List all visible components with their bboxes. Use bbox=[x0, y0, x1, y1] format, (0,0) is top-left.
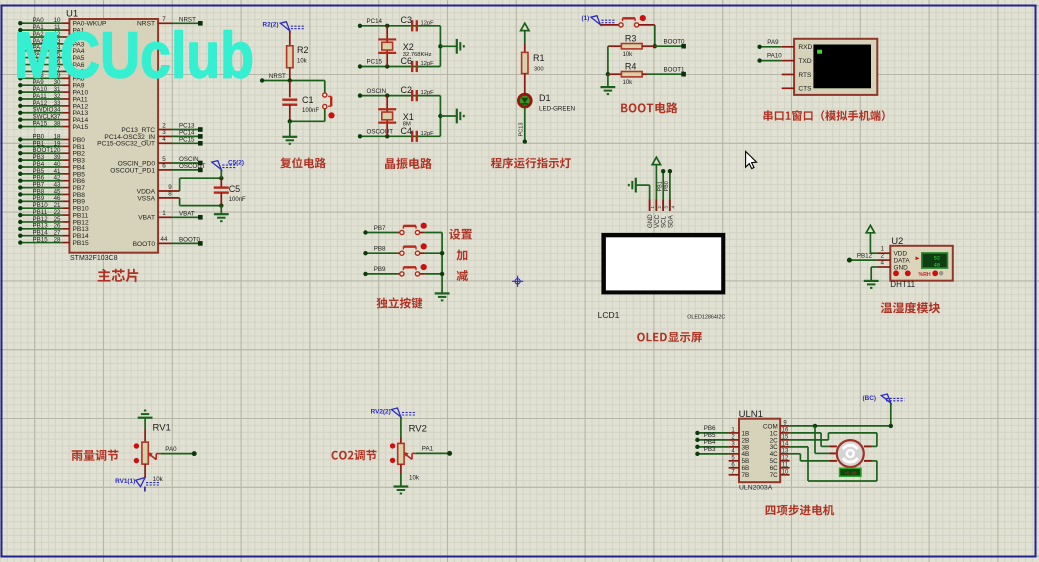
svg-text:PA10: PA10 bbox=[767, 53, 782, 60]
svg-text:10k: 10k bbox=[153, 476, 164, 483]
svg-text:1: 1 bbox=[162, 210, 166, 217]
svg-text:RV2(2): RV2(2) bbox=[371, 408, 391, 415]
svg-text:6B: 6B bbox=[742, 465, 750, 472]
svg-text:6C: 6C bbox=[770, 465, 779, 472]
svg-text:VBAT: VBAT bbox=[138, 215, 155, 222]
svg-text:10k: 10k bbox=[623, 52, 634, 58]
svg-text:PC15: PC15 bbox=[179, 137, 195, 144]
svg-text:4: 4 bbox=[162, 136, 166, 143]
svg-text:C3: C3 bbox=[401, 15, 413, 25]
svg-text:OSCOUT: OSCOUT bbox=[179, 163, 206, 170]
svg-text:RTS: RTS bbox=[798, 72, 812, 79]
svg-text:1C: 1C bbox=[770, 430, 779, 437]
svg-text:8: 8 bbox=[168, 191, 172, 198]
svg-text:12pF: 12pF bbox=[421, 61, 435, 67]
svg-text:X2: X2 bbox=[403, 42, 414, 52]
svg-text:(BC): (BC) bbox=[863, 395, 877, 402]
svg-text:PB1: PB1 bbox=[657, 181, 663, 191]
svg-text:LED-GREEN: LED-GREEN bbox=[539, 105, 575, 112]
svg-text:PB12: PB12 bbox=[857, 252, 873, 259]
svg-text:C6: C6 bbox=[401, 56, 413, 66]
svg-text:PB7: PB7 bbox=[374, 225, 386, 232]
svg-text:10k: 10k bbox=[623, 80, 634, 86]
svg-text:D1: D1 bbox=[539, 93, 551, 103]
svg-text:10k: 10k bbox=[297, 59, 308, 65]
svg-text:2C: 2C bbox=[770, 437, 779, 444]
svg-text:16: 16 bbox=[782, 427, 789, 433]
svg-text:R3: R3 bbox=[625, 34, 637, 44]
svg-text:5B: 5B bbox=[742, 458, 750, 465]
svg-text:TXD: TXD bbox=[798, 58, 811, 65]
svg-text:PA15: PA15 bbox=[33, 120, 48, 127]
svg-text:12: 12 bbox=[782, 455, 789, 461]
svg-text:OSCOUT_PD1: OSCOUT_PD1 bbox=[110, 167, 155, 174]
svg-text:100nF: 100nF bbox=[229, 197, 246, 203]
svg-text:PB15: PB15 bbox=[33, 236, 49, 243]
svg-text:PB0: PB0 bbox=[664, 181, 670, 191]
svg-text:3C: 3C bbox=[770, 444, 779, 451]
svg-text:PB8: PB8 bbox=[374, 246, 386, 253]
svg-text:R4: R4 bbox=[625, 62, 637, 72]
svg-text:52: 52 bbox=[934, 255, 940, 261]
svg-text:SDA: SDA bbox=[667, 214, 674, 228]
svg-text:PC13: PC13 bbox=[519, 123, 525, 137]
svg-text:PC15-OSC32_OUT: PC15-OSC32_OUT bbox=[97, 141, 155, 148]
svg-text:LCD1: LCD1 bbox=[598, 310, 620, 320]
svg-text:12pF: 12pF bbox=[421, 131, 435, 137]
svg-text:R2(2): R2(2) bbox=[263, 22, 279, 29]
svg-text:NRST: NRST bbox=[269, 73, 286, 80]
svg-text:VSSA: VSSA bbox=[137, 195, 155, 202]
svg-text:DHT11: DHT11 bbox=[890, 280, 915, 289]
svg-text:11: 11 bbox=[782, 462, 789, 468]
svg-text:40: 40 bbox=[934, 262, 940, 268]
svg-text:PB5: PB5 bbox=[704, 432, 716, 439]
svg-text:PB6: PB6 bbox=[704, 425, 716, 432]
svg-text:PA0: PA0 bbox=[165, 446, 177, 453]
svg-text:CTS: CTS bbox=[798, 86, 812, 93]
svg-text:3B: 3B bbox=[742, 444, 750, 451]
svg-text:OLED12864I2C: OLED12864I2C bbox=[687, 315, 725, 321]
svg-text:PC15: PC15 bbox=[367, 59, 383, 66]
svg-text:RV1(1): RV1(1) bbox=[115, 478, 135, 485]
svg-text:PB3: PB3 bbox=[704, 446, 716, 453]
svg-text:1B: 1B bbox=[742, 430, 750, 437]
svg-text:+0.00: +0.00 bbox=[844, 473, 857, 477]
svg-text:RXD: RXD bbox=[798, 44, 812, 51]
svg-text:PA9: PA9 bbox=[767, 39, 779, 46]
svg-text:PB4: PB4 bbox=[704, 439, 716, 446]
svg-text:PA1: PA1 bbox=[422, 446, 434, 453]
svg-text:VBAT: VBAT bbox=[179, 211, 195, 218]
svg-text:BOOT0: BOOT0 bbox=[179, 237, 201, 244]
svg-text:28: 28 bbox=[54, 236, 61, 243]
svg-text:7C: 7C bbox=[770, 472, 779, 479]
svg-text:STM32F103C8: STM32F103C8 bbox=[70, 255, 118, 262]
svg-text:BOOT1: BOOT1 bbox=[664, 66, 686, 73]
svg-text:4C: 4C bbox=[770, 451, 779, 458]
svg-text:BOOT0: BOOT0 bbox=[664, 38, 686, 45]
svg-text:300: 300 bbox=[534, 67, 544, 73]
svg-text:15: 15 bbox=[782, 434, 789, 440]
svg-text:OSCOUT: OSCOUT bbox=[367, 129, 394, 136]
svg-text:C5: C5 bbox=[229, 184, 241, 194]
svg-text:C5(2): C5(2) bbox=[228, 159, 244, 166]
svg-text:RV2: RV2 bbox=[409, 424, 427, 435]
svg-text:38: 38 bbox=[54, 120, 61, 127]
svg-text:C4: C4 bbox=[401, 126, 413, 136]
svg-text:PB15: PB15 bbox=[73, 240, 89, 247]
svg-text:MCUclub: MCUclub bbox=[14, 19, 254, 92]
svg-text:C1: C1 bbox=[302, 95, 314, 105]
svg-text:5C: 5C bbox=[770, 458, 779, 465]
svg-text:6: 6 bbox=[162, 163, 166, 170]
svg-text:12pF: 12pF bbox=[421, 90, 435, 96]
svg-text:PC14: PC14 bbox=[367, 18, 383, 25]
svg-text:BOOT0: BOOT0 bbox=[133, 241, 156, 248]
svg-text:PB9: PB9 bbox=[374, 266, 386, 273]
svg-text:ULN2003A: ULN2003A bbox=[739, 484, 773, 491]
svg-text:(1): (1) bbox=[582, 15, 590, 22]
svg-text:14: 14 bbox=[782, 441, 789, 447]
svg-text:R1: R1 bbox=[533, 53, 545, 63]
svg-text:RV1: RV1 bbox=[153, 423, 171, 434]
svg-text:OSCIN: OSCIN bbox=[367, 88, 387, 95]
svg-text:X1: X1 bbox=[403, 112, 414, 122]
svg-text:44: 44 bbox=[161, 236, 168, 243]
svg-text:PA15: PA15 bbox=[73, 124, 89, 131]
svg-text:13: 13 bbox=[782, 448, 789, 454]
svg-text:7B: 7B bbox=[742, 472, 750, 479]
svg-text:100nF: 100nF bbox=[302, 108, 319, 114]
svg-text:10: 10 bbox=[782, 469, 789, 475]
svg-text:2B: 2B bbox=[742, 437, 750, 444]
svg-text:%RH: %RH bbox=[919, 272, 931, 278]
svg-text:R2: R2 bbox=[297, 45, 309, 55]
svg-text:10k: 10k bbox=[409, 474, 420, 481]
svg-text:C2: C2 bbox=[401, 85, 413, 95]
svg-text:12pF: 12pF bbox=[421, 20, 435, 26]
svg-text:4B: 4B bbox=[742, 451, 750, 458]
svg-text:COM: COM bbox=[763, 423, 778, 430]
